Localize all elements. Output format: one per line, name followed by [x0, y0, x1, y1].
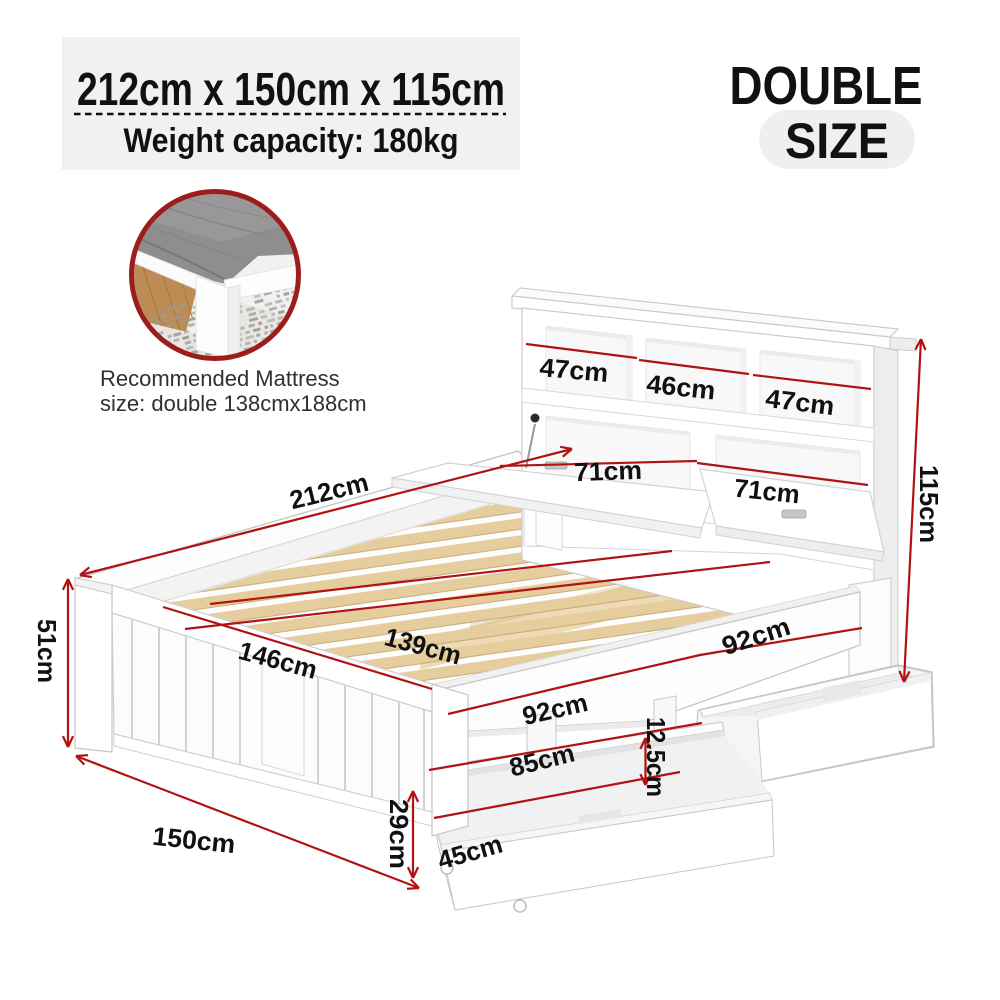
svg-text:47cm: 47cm [538, 352, 609, 388]
svg-text:71cm: 71cm [573, 455, 642, 487]
svg-text:212cm x 150cm x 115cm: 212cm x 150cm x 115cm [77, 63, 505, 115]
svg-text:150cm: 150cm [151, 821, 237, 860]
svg-text:DOUBLE: DOUBLE [730, 56, 923, 116]
svg-text:12.5cm: 12.5cm [641, 717, 671, 797]
svg-text:51cm: 51cm [32, 619, 62, 683]
svg-text:115cm: 115cm [914, 465, 944, 543]
svg-text:SIZE: SIZE [785, 113, 889, 169]
svg-text:Weight capacity: 180kg: Weight capacity: 180kg [124, 122, 459, 160]
svg-text:Recommended Mattress: Recommended Mattress [100, 366, 340, 391]
svg-text:size: double 138cmx188cm: size: double 138cmx188cm [100, 391, 367, 416]
svg-text:29cm: 29cm [384, 799, 414, 869]
